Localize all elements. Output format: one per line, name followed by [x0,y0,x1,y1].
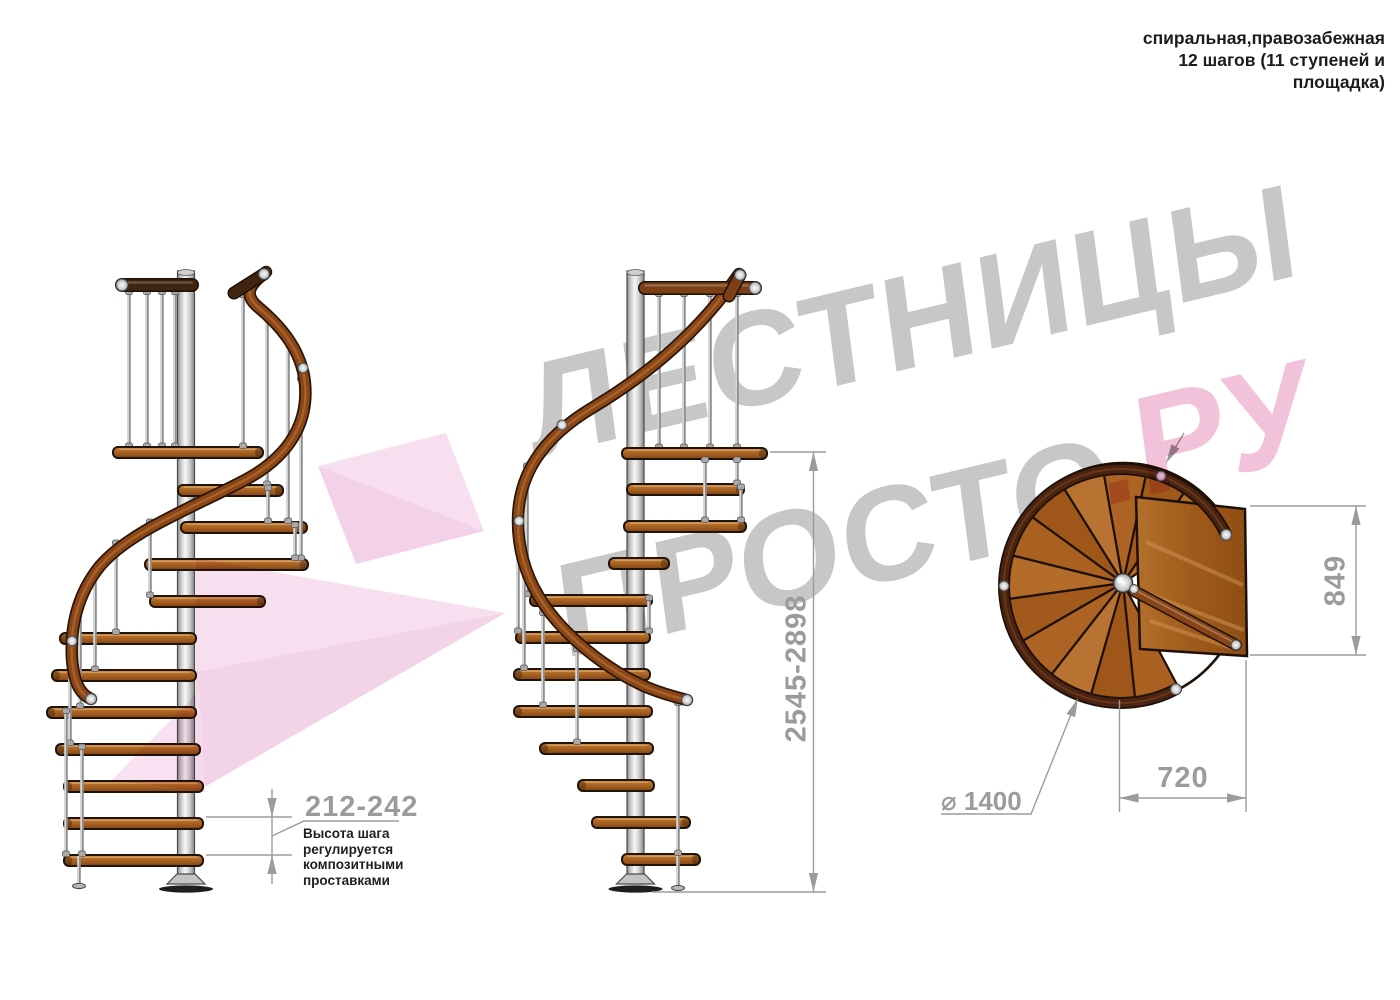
dimension-label-total-height: 2545-2898 [781,519,814,819]
drawing-title-line3: площадка) [1143,71,1385,93]
step-height-note-line3: композитными [303,857,403,873]
drawing-title: спиральная,правозабежная 12 шагов (11 ст… [1143,27,1385,93]
drawing-title-line2: 12 шагов (11 ступеней и [1143,49,1385,71]
step-height-note: Высота шага регулируется композитными пр… [303,826,403,888]
dimension-label-step-height: 212-242 [305,791,418,824]
drawing-title-line1: спиральная,правозабежная [1143,27,1385,49]
dimension-label-platform-width: 720 [1133,762,1233,795]
dimension-label-platform-depth: 849 [1320,506,1353,656]
drawing-canvas: ЛЕСТНИЦЫ ПРОСТО .РУ спиральная,правозабе… [0,0,1400,1000]
logo-arrow-shape [112,433,505,792]
step-height-note-line2: регулируется [303,842,403,858]
step-height-note-line4: проставками [303,873,403,889]
step-height-note-line1: Высота шага [303,826,403,842]
dimension-label-diameter: ⌀ 1400 [941,786,1022,817]
